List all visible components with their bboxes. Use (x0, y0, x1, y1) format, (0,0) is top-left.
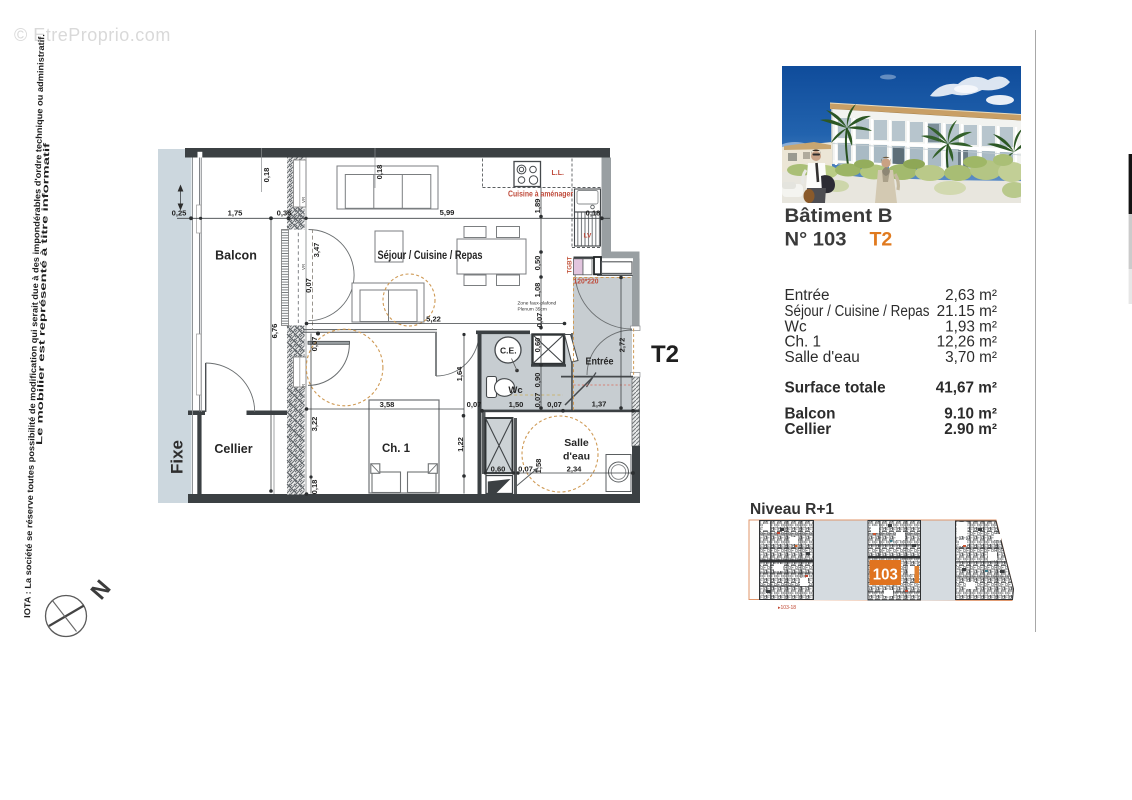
svg-text:Balcon: Balcon (785, 405, 836, 422)
svg-text:3,22: 3,22 (310, 417, 319, 432)
svg-text:Plenum 35cm: Plenum 35cm (518, 307, 547, 313)
svg-text:Entrée: Entrée (785, 287, 830, 304)
svg-text:1,75: 1,75 (228, 209, 244, 218)
svg-text:Séjour / Cuisine / Repas: Séjour / Cuisine / Repas (378, 250, 483, 262)
svg-text:0,18: 0,18 (310, 480, 319, 495)
svg-text:1,64: 1,64 (455, 366, 464, 382)
svg-text:0,18: 0,18 (375, 165, 384, 180)
svg-text:VR: VR (301, 263, 306, 270)
svg-text:120*220: 120*220 (574, 277, 599, 286)
svg-text:Niveau R+1: Niveau R+1 (750, 501, 834, 518)
svg-text:9.10 m²: 9.10 m² (944, 405, 997, 422)
svg-text:Zone faux-plafond: Zone faux-plafond (518, 301, 557, 307)
svg-text:0,07: 0,07 (535, 313, 544, 328)
svg-text:0,07: 0,07 (518, 464, 533, 473)
svg-text:Bâtiment B: Bâtiment B (785, 205, 893, 227)
svg-text:5,22: 5,22 (426, 314, 441, 323)
svg-text:3,70 m²: 3,70 m² (945, 349, 997, 366)
svg-text:VR: VR (301, 196, 306, 203)
svg-text:T2: T2 (870, 229, 893, 251)
svg-text:2.90 m²: 2.90 m² (944, 421, 997, 438)
svg-text:Wc: Wc (508, 385, 522, 396)
svg-text:Fixe: Fixe (168, 440, 187, 474)
svg-text:Cuisine à aménager: Cuisine à aménager (508, 189, 573, 198)
svg-text:Salle: Salle (564, 437, 589, 449)
svg-text:41,67 m²: 41,67 m² (936, 379, 997, 396)
svg-text:0,07: 0,07 (304, 278, 313, 293)
svg-text:TGBT: TGBT (567, 256, 574, 273)
svg-text:103: 103 (873, 567, 898, 584)
svg-text:Cellier: Cellier (785, 421, 832, 438)
svg-text:0,18: 0,18 (262, 168, 271, 183)
svg-text:0,25: 0,25 (172, 209, 188, 218)
svg-text:3,47: 3,47 (312, 243, 321, 258)
svg-text:1,50: 1,50 (509, 400, 524, 409)
svg-text:1,08: 1,08 (533, 283, 542, 298)
svg-text:LV: LV (584, 233, 592, 240)
svg-text:N: N (85, 575, 116, 605)
svg-text:L.L.: L.L. (552, 170, 564, 177)
svg-text:6,76: 6,76 (270, 324, 279, 339)
svg-text:0,07: 0,07 (467, 400, 482, 409)
svg-text:VR: VR (301, 383, 306, 390)
svg-text:Ch. 1: Ch. 1 (382, 443, 411, 455)
svg-text:1,58: 1,58 (534, 459, 543, 474)
svg-text:T2: T2 (651, 341, 679, 368)
svg-text:1,22: 1,22 (456, 437, 465, 452)
svg-text:Surface totale: Surface totale (785, 379, 886, 396)
svg-text:3,58: 3,58 (380, 400, 395, 409)
svg-text:Salle d'eau: Salle d'eau (785, 349, 860, 366)
svg-text:1,37: 1,37 (592, 399, 607, 408)
svg-text:2,34: 2,34 (567, 464, 583, 473)
svg-text:Balcon: Balcon (215, 249, 257, 263)
svg-text:1,89: 1,89 (533, 199, 542, 214)
svg-text:0,07: 0,07 (310, 337, 319, 352)
svg-text:2,72: 2,72 (617, 338, 626, 353)
svg-text:Séjour / Cuisine / Repas: Séjour / Cuisine / Repas (785, 303, 930, 320)
svg-text:▸103-18: ▸103-18 (778, 605, 796, 611)
svg-text:0,50: 0,50 (533, 256, 542, 271)
svg-text:0,60: 0,60 (491, 464, 506, 473)
svg-text:0,36: 0,36 (277, 209, 292, 218)
svg-text:Entrée: Entrée (586, 356, 614, 368)
svg-text:5,99: 5,99 (440, 208, 455, 217)
svg-text:C.E.: C.E. (500, 346, 517, 356)
svg-text:0,18: 0,18 (586, 208, 601, 217)
svg-text:21.15 m²: 21.15 m² (937, 303, 997, 320)
svg-text:0,90: 0,90 (533, 373, 542, 388)
svg-text:2,63 m²: 2,63 m² (945, 287, 997, 304)
svg-text:N° 103: N° 103 (785, 229, 847, 251)
svg-text:0,60: 0,60 (533, 338, 542, 353)
svg-text:0,07: 0,07 (533, 393, 542, 408)
svg-text:Cellier: Cellier (214, 442, 252, 456)
svg-text:0,07: 0,07 (547, 400, 562, 409)
svg-text:d'eau: d'eau (563, 451, 590, 463)
